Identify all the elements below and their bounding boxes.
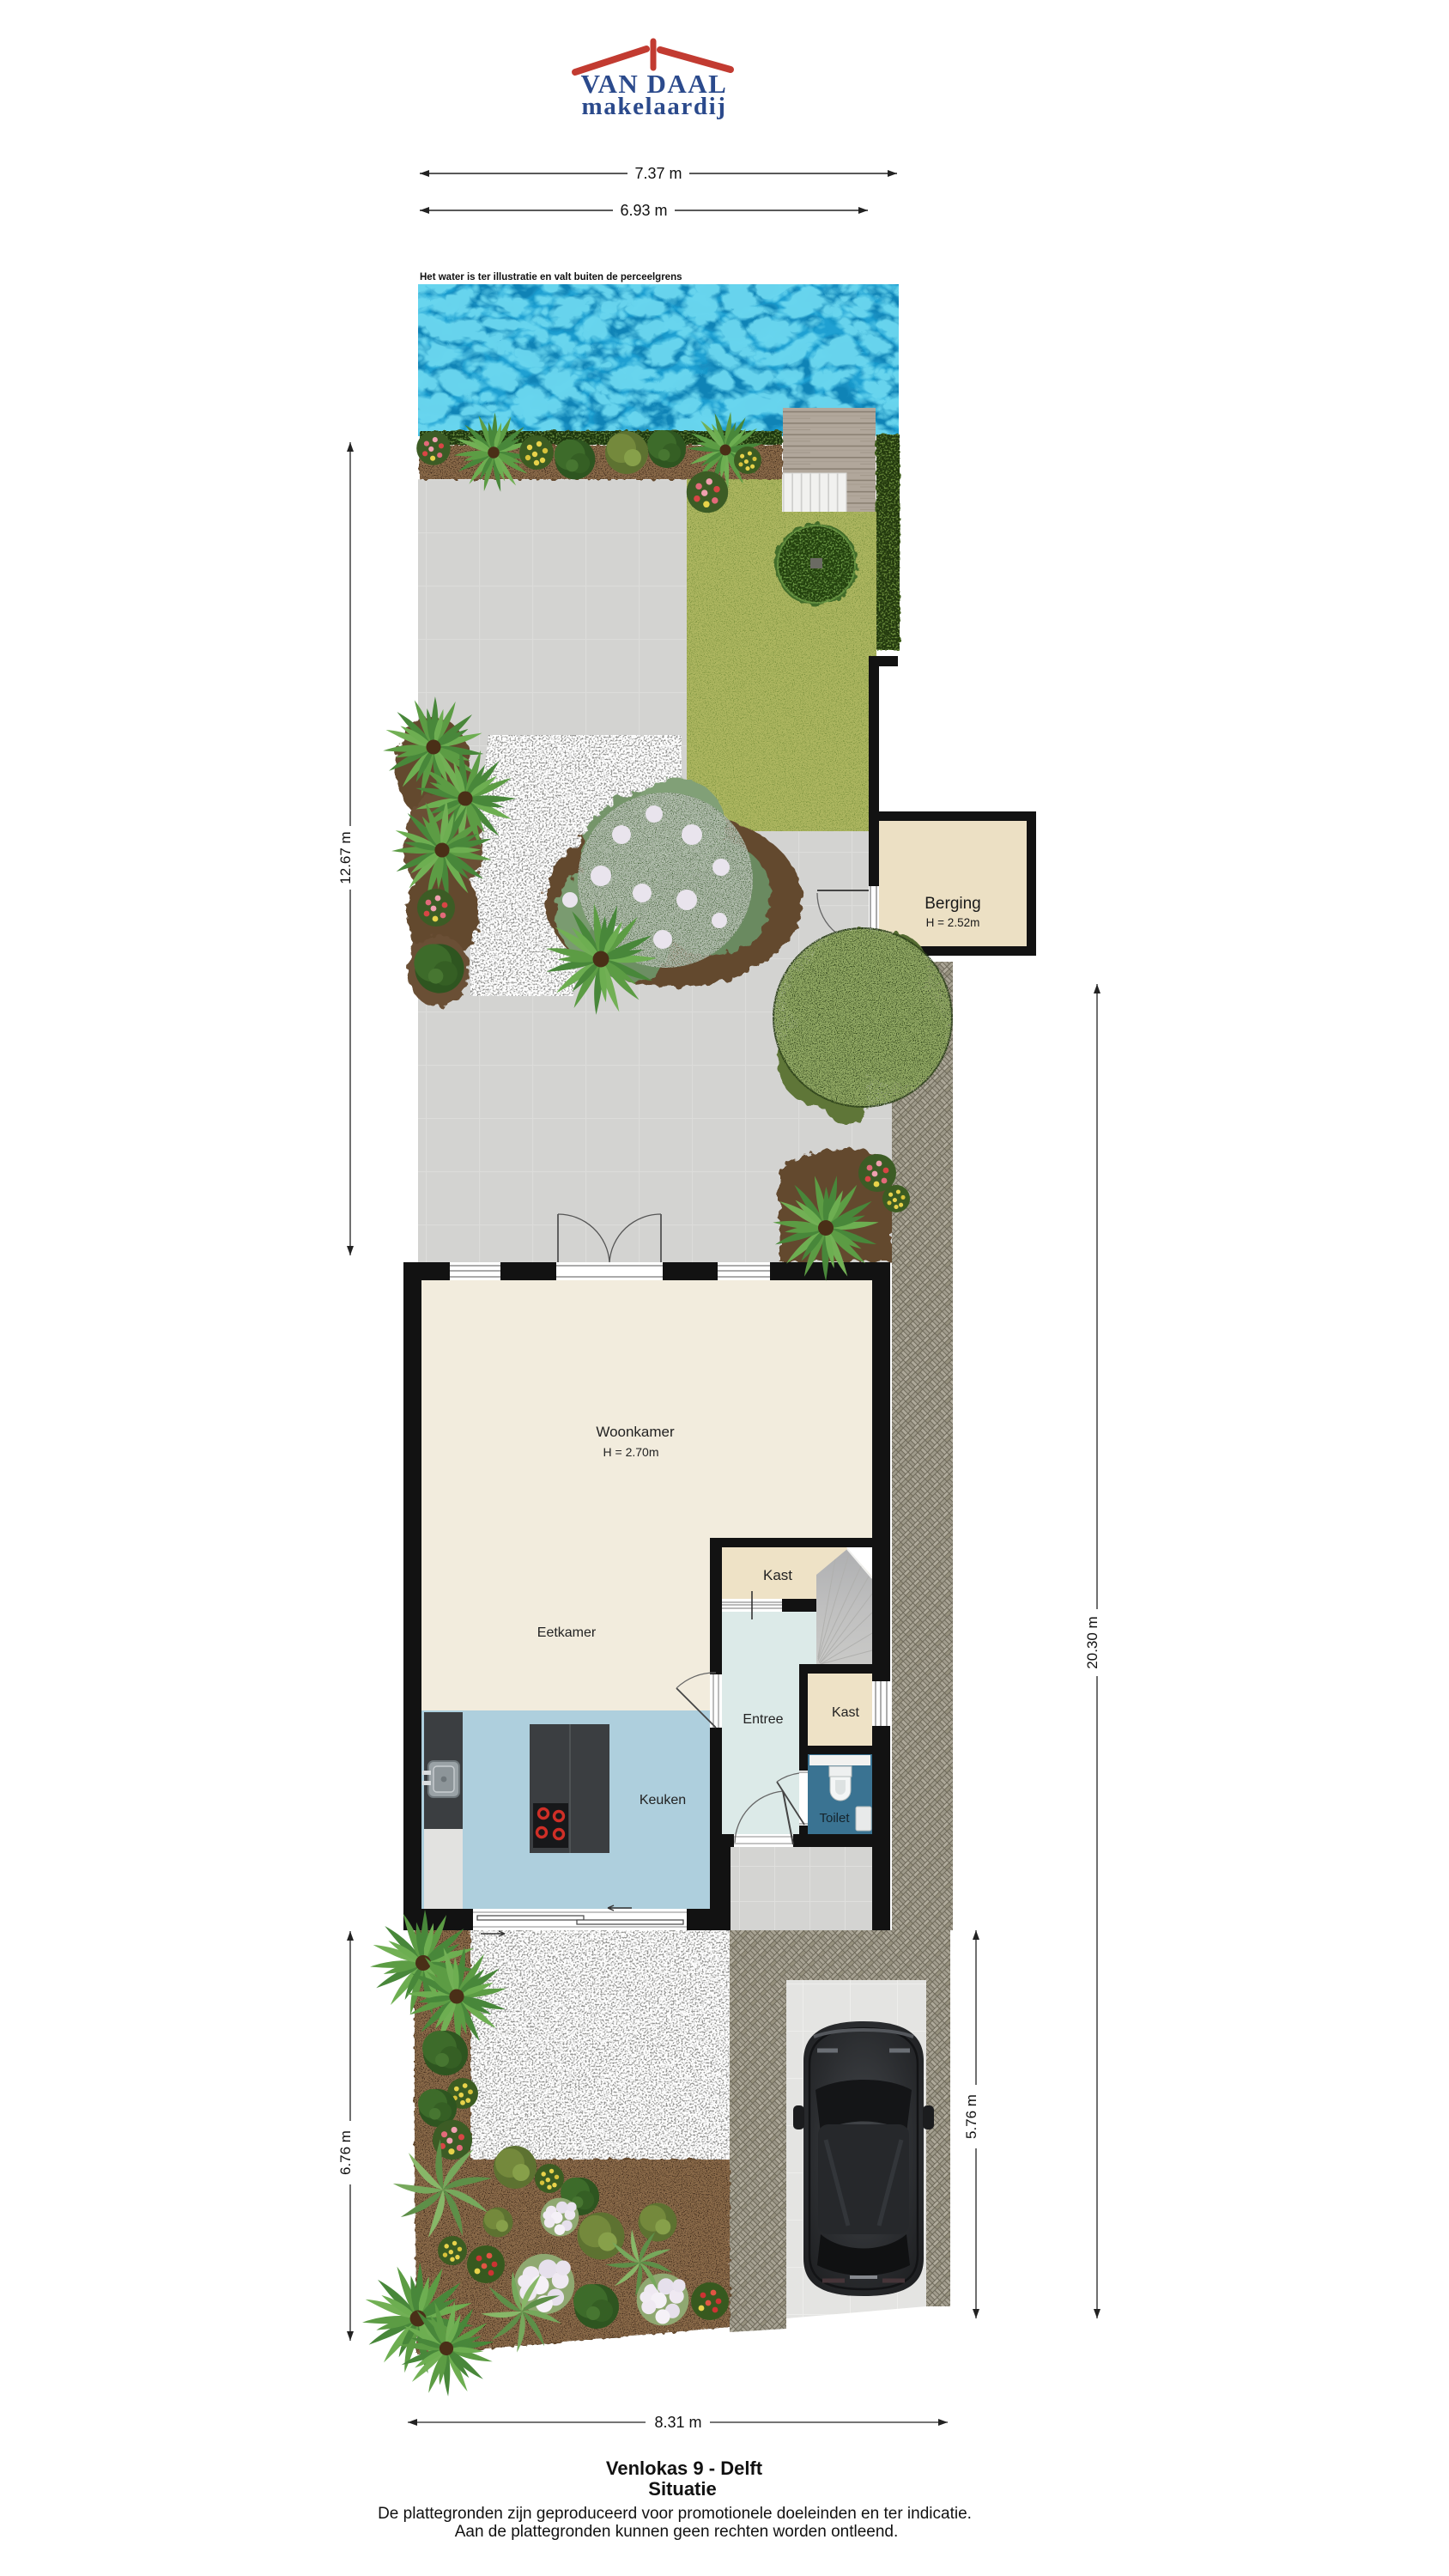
svg-text:De plattegronden zijn geproduc: De plattegronden zijn geproduceerd voor …	[378, 2505, 972, 2523]
svg-text:Het water is ter illustratie e: Het water is ter illustratie en valt bui…	[420, 272, 682, 283]
svg-text:Kast: Kast	[763, 1567, 792, 1583]
svg-text:8.31 m: 8.31 m	[654, 2414, 701, 2431]
svg-text:Aan de plattegronden kunnen ge: Aan de plattegronden kunnen geen rechten…	[455, 2523, 899, 2541]
svg-text:Entree: Entree	[743, 1712, 783, 1727]
svg-text:Eetkamer: Eetkamer	[537, 1625, 597, 1640]
svg-text:Keuken: Keuken	[640, 1793, 686, 1807]
svg-text:makelaardij: makelaardij	[581, 93, 726, 120]
svg-text:Venlokas 9 - Delft: Venlokas 9 - Delft	[606, 2458, 763, 2479]
svg-text:Kast: Kast	[832, 1705, 860, 1720]
svg-text:Berging: Berging	[925, 895, 981, 913]
svg-text:Toilet: Toilet	[819, 1811, 850, 1826]
svg-text:5.76 m: 5.76 m	[963, 2094, 979, 2139]
svg-text:6.93 m: 6.93 m	[620, 202, 667, 219]
svg-text:Woonkamer: Woonkamer	[596, 1424, 675, 1440]
svg-text:7.37 m: 7.37 m	[634, 165, 682, 182]
svg-text:H = 2.70m: H = 2.70m	[603, 1445, 659, 1459]
svg-text:12.67 m: 12.67 m	[337, 831, 354, 884]
svg-text:H = 2.52m: H = 2.52m	[926, 916, 980, 929]
svg-text:Situatie: Situatie	[648, 2478, 716, 2500]
svg-text:6.76 m: 6.76 m	[337, 2130, 354, 2175]
svg-text:20.30 m: 20.30 m	[1084, 1616, 1100, 1668]
